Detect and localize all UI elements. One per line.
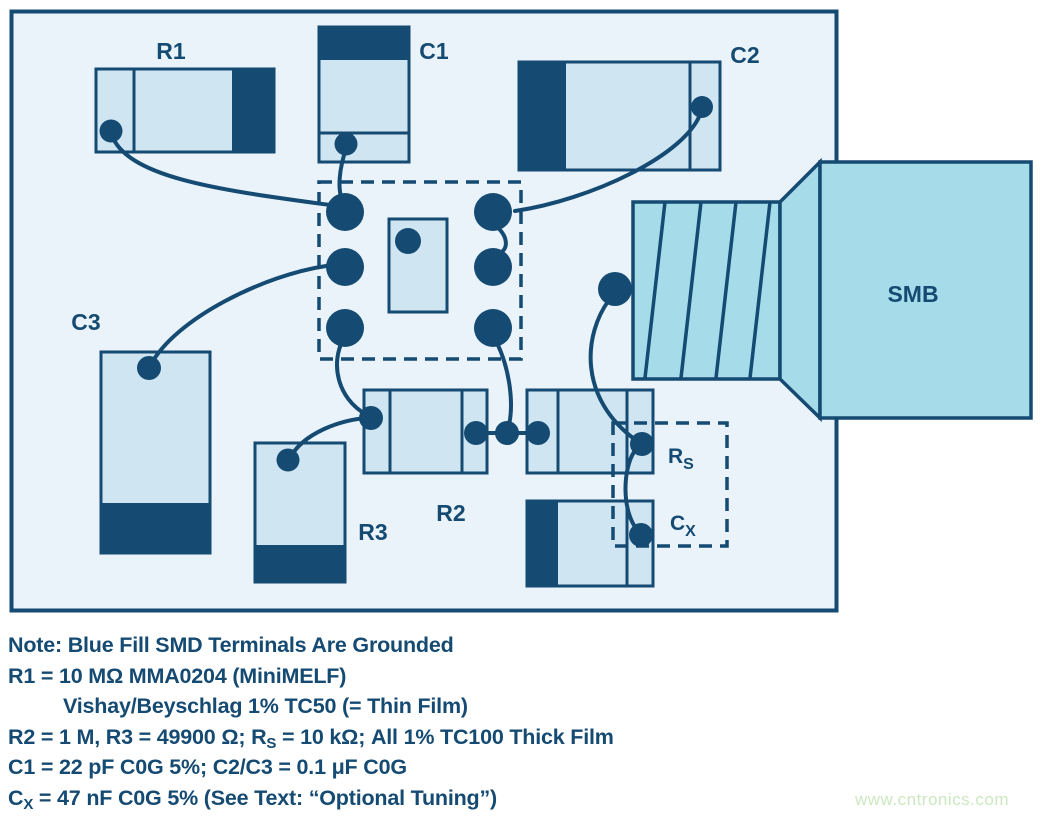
c1-label: C1: [419, 38, 449, 64]
note-line: CX = 47 nF C0G 5% (See Text: “Optional T…: [8, 783, 614, 814]
note-line: C1 = 22 pF C0G 5%; C2/C3 = 0.1 μF C0G: [8, 752, 614, 783]
note-line: Vishay/Beyschlag 1% TC50 (= Thin Film): [8, 691, 614, 722]
smb-label: SMB: [887, 281, 938, 307]
c3-pad: [137, 356, 161, 380]
cx-right-pad: [629, 523, 653, 547]
cx-label-main: C: [670, 512, 685, 535]
c1-pad: [335, 133, 358, 156]
r1-label: R1: [156, 38, 186, 64]
r3-pad: [277, 449, 300, 472]
note-text: C: [8, 786, 23, 810]
cx-grounded-terminal: [527, 501, 558, 586]
ic-pad: [326, 193, 364, 231]
ic-pad: [474, 193, 512, 231]
c2-grounded-terminal: [519, 62, 566, 170]
r1-pad: [100, 120, 123, 143]
ic-pad: [326, 248, 364, 286]
center-pad-via: [395, 228, 421, 254]
rs-right-pad: [630, 432, 654, 456]
smb-transition-section: [780, 162, 820, 418]
ic-pad: [474, 248, 512, 286]
note-line: Note: Blue Fill SMD Terminals Are Ground…: [8, 630, 614, 661]
c2-label: C2: [730, 42, 759, 68]
r2-right-pad: [464, 421, 488, 445]
rs-left-pad: [526, 421, 550, 445]
smb-center-pad: [598, 272, 632, 306]
note-subscript: S: [266, 735, 276, 752]
r2-label: R2: [436, 500, 465, 526]
c3-label: C3: [71, 309, 100, 335]
note-text: R2 = 1 M, R3 = 49900 Ω; R: [8, 725, 266, 749]
note-line: R1 = 10 MΩ MMA0204 (MiniMELF): [8, 661, 614, 692]
cx-label-subscript: X: [685, 523, 696, 540]
smb-connector: SMB: [633, 162, 1031, 418]
c1-grounded-terminal: [319, 27, 409, 60]
r3-grounded-terminal: [255, 545, 345, 582]
rs-label-subscript: S: [683, 456, 694, 473]
mid-pad: [495, 421, 519, 445]
notes-block: Note: Blue Fill SMD Terminals Are Ground…: [8, 630, 614, 813]
note-text: = 47 nF C0G 5% (See Text: “Optional Tuni…: [33, 786, 497, 810]
c3-grounded-terminal: [101, 503, 210, 553]
c2-pad: [691, 96, 713, 118]
r1-grounded-terminal: [232, 69, 274, 152]
note-text: = 10 kΩ; All 1% TC100 Thick Film: [276, 725, 613, 749]
pcb-layout-figure: SMB R1 C1 C2 C3: [0, 0, 1043, 820]
note-line: R2 = 1 M, R3 = 49900 Ω; RS = 10 kΩ; All …: [8, 722, 614, 753]
ic-pad: [326, 309, 364, 347]
pcb-diagram: SMB R1 C1 C2 C3: [0, 0, 1043, 620]
note-subscript: X: [23, 796, 33, 813]
r2-left-pad: [359, 406, 383, 430]
rs-label-main: R: [668, 445, 683, 468]
watermark: www.cntronics.com: [855, 790, 1009, 810]
r3-label: R3: [358, 519, 387, 545]
ic-pad: [474, 309, 512, 347]
